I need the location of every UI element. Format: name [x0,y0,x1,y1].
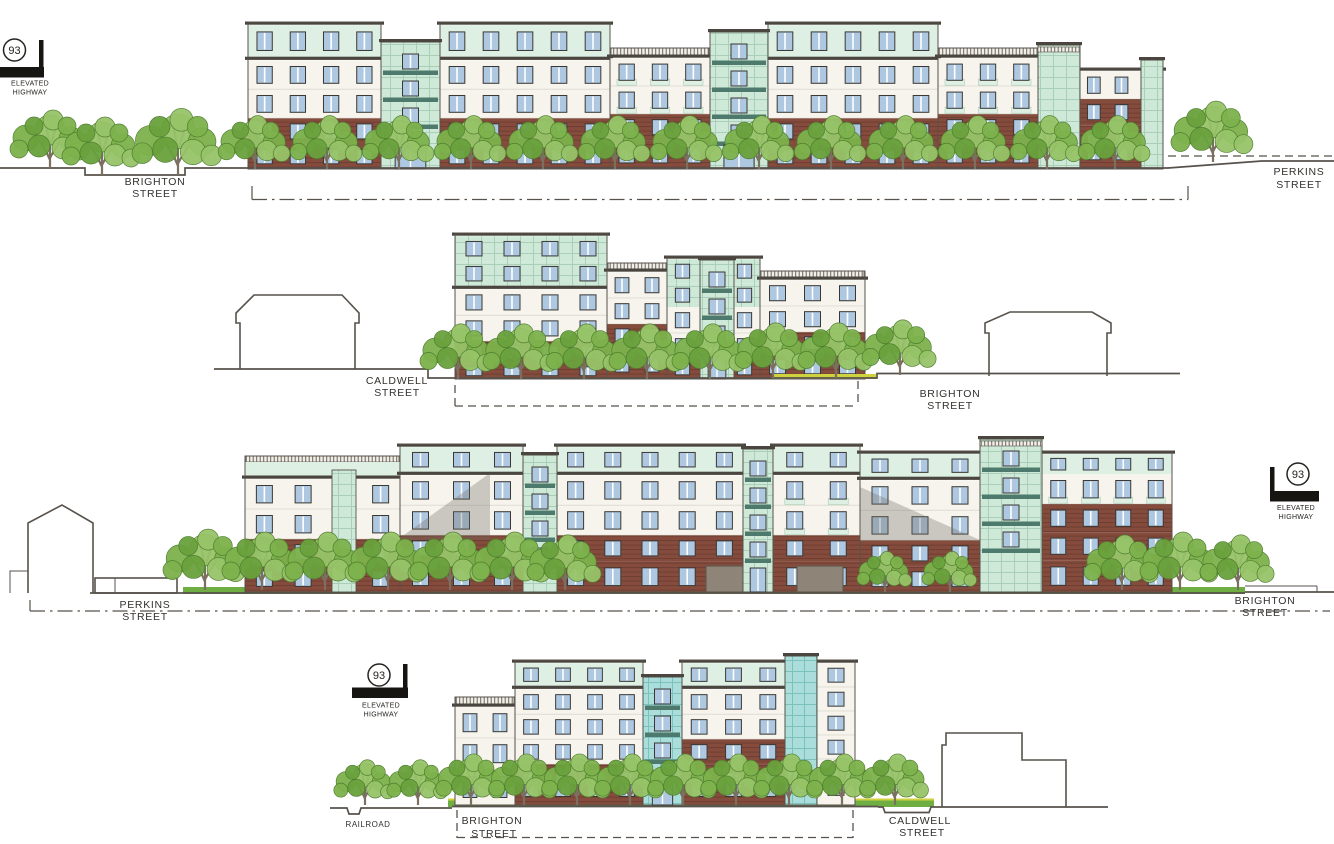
tree-canopy [304,122,321,139]
tree-canopy [655,331,672,348]
tree-canopy [232,122,249,139]
tree-canopy [609,352,626,369]
marker-label: ELEVATED [362,703,400,710]
street-label: CALDWELL [366,375,428,387]
tree-canopy [722,143,739,160]
tree-canopy [608,760,624,776]
neighbor-house-left [28,505,93,593]
cornice [765,57,941,60]
balcony-railing [702,289,732,294]
balcony-railing [982,549,1040,554]
tree-canopy [717,776,736,795]
tree-canopy [578,143,595,160]
tree-canopy [908,327,925,344]
tree-canopy [849,145,866,162]
tree-canopy [434,331,451,348]
balcony-railing [383,98,438,103]
sidewalk-wall [95,578,177,593]
tree-canopy [502,760,518,776]
tree-canopy [523,139,543,159]
neighbor-house-right [985,312,1111,376]
tree-canopy [149,116,170,137]
tree-canopy [153,137,178,162]
tree-canopy [739,139,759,159]
cornice [397,472,526,475]
tree-canopy [664,776,683,795]
tree-canopy [873,760,889,776]
tree-canopy [622,122,639,139]
tree-canopy [1024,122,1041,139]
highway-deck [1270,491,1319,502]
marker-label: HIGHWAY [364,712,399,719]
balcony-railing [645,733,680,738]
tree-canopy [752,347,773,368]
tree-canopy [1133,145,1150,162]
glass-bay [978,436,1044,592]
tree-canopy [1158,557,1180,579]
street-label: STREET [132,188,178,200]
garage-door [706,566,744,592]
tree-canopy [823,776,842,795]
tree-canopy [410,562,428,580]
tree-canopy [376,122,393,139]
tree-canopy [891,556,904,569]
cornice [935,55,1041,58]
roof-railing [980,441,1042,446]
tree-canopy [794,143,811,160]
tree-canopy [1098,542,1115,559]
tree-canopy [935,569,950,584]
tree-canopy [541,542,558,559]
tree-canopy [28,135,50,157]
tree-canopy [563,348,584,369]
tree-canopy [406,122,423,139]
tree [132,108,222,175]
tree-canopy [718,331,735,348]
tree-canopy [187,116,208,137]
tree-canopy [584,760,600,776]
tree-canopy [667,139,687,159]
tree-canopy [1155,539,1173,557]
tree-canopy [705,145,722,162]
street-label: BRIGHTON [125,176,186,188]
tree-canopy [811,139,831,159]
cornice [857,477,983,480]
tree-canopy [334,783,348,797]
roof-railing [608,263,666,269]
tree-canopy [736,122,753,139]
ground-line [330,807,1108,815]
tree-canopy [690,760,706,776]
tree-canopy [838,122,855,139]
marker-label: ELEVATED [1277,505,1315,512]
elevation-4: 93 ELEVATED HIGHWAY RAILROAD BRIGHTON ST… [330,653,1108,840]
tree-canopy [262,122,279,139]
tree-canopy [428,557,450,579]
marker-label: ELEVATED [11,81,49,88]
cornice [437,57,613,60]
street-label: BRIGHTON [920,388,981,400]
elevation-sheet: 93 ELEVATED HIGHWAY BRIGHTON STREET PERK… [0,0,1334,844]
tree-canopy [1217,559,1238,580]
street-label: STREET [899,827,945,839]
tree-canopy [550,122,567,139]
tree-canopy [346,765,360,779]
tree-canopy [379,139,399,159]
tree-canopy [611,776,630,795]
tree-canopy [689,348,710,369]
tree-canopy [743,760,759,776]
tree-canopy [964,574,977,587]
tree-canopy [1140,562,1158,580]
neighbor-house-left [236,295,359,369]
route-number: 93 [373,670,385,682]
tree-canopy [371,765,385,779]
tree-canopy [876,776,895,795]
tree-canopy [527,563,544,580]
tree-canopy [922,572,935,585]
tree-canopy [876,327,893,344]
cornice [1036,42,1082,45]
tree-canopy [808,122,825,139]
tree-canopy [672,352,689,369]
tree-canopy [1092,122,1109,139]
street-label: STREET [927,400,973,412]
tree-canopy [558,776,577,795]
tree-canopy [993,145,1010,162]
tree-canopy [448,122,465,139]
cornice [770,472,863,475]
tree-canopy [1188,539,1206,557]
tree-canopy [449,760,465,776]
tree-canopy [796,760,812,776]
tree-canopy [595,139,615,159]
tree-canopy [637,760,653,776]
ground-line [90,592,1334,593]
tree-canopy [913,782,929,798]
tree-canopy [933,556,946,569]
tree-canopy [777,145,794,162]
balcony-railing [982,495,1040,500]
tree-canopy [694,122,711,139]
balcony-railing [712,88,766,93]
tree-canopy [1214,542,1231,559]
street-label: CALDWELL [889,815,951,827]
road-edge [1245,586,1317,592]
tree-canopy [222,562,240,580]
tree-canopy [921,145,938,162]
tree-canopy [345,145,362,162]
tree-canopy [754,780,770,796]
highway-deck [0,67,44,78]
elevation-drawing: 93 ELEVATED HIGHWAY BRIGHTON STREET PERK… [0,0,1334,844]
tree-canopy [520,122,537,139]
tree-canopy [982,122,999,139]
balcony-railing [745,532,771,537]
tree-canopy [334,122,351,139]
highway-marker: 93 ELEVATED HIGHWAY [352,664,408,719]
tree-canopy [303,557,325,579]
tree-canopy [420,352,437,369]
garage-door [797,566,843,592]
tree-canopy [1078,143,1095,160]
cornice [512,686,646,689]
tree-canopy [333,539,351,557]
tree-canopy [425,539,443,557]
balcony-railing [702,316,732,321]
tree-canopy [573,542,590,559]
marker-label: HIGHWAY [13,90,48,97]
tree-canopy [879,344,900,365]
tree-canopy [592,331,609,348]
tree-canopy [664,122,681,139]
tree-canopy [749,330,766,347]
cornice [245,57,384,60]
tree-canopy [1027,139,1047,159]
tree-canopy [857,572,870,585]
tree-canopy [820,760,836,776]
tree-canopy [497,331,514,348]
tree-canopy [650,143,667,160]
street-label: BRIGHTON [462,815,523,827]
house-annex-line [10,571,28,593]
penthouse-floor [245,462,400,476]
balcony-railing [383,71,438,76]
tree-canopy [363,539,381,557]
tree-canopy [505,776,524,795]
tree-canopy [542,780,558,796]
tree-canopy [561,145,578,162]
tree-canopy [560,331,577,348]
route-number: 93 [1292,469,1304,481]
highway-marker: 93 ELEVATED HIGHWAY [1270,463,1319,521]
tree-canopy [592,122,609,139]
street-label: PERKINS [120,599,171,611]
tree-canopy [544,559,565,580]
street-label: STREET [1242,607,1288,619]
tree-canopy [451,139,471,159]
cornice [1139,57,1165,60]
tree-canopy [270,539,288,557]
tree-canopy [938,143,955,160]
tree-canopy [348,779,365,796]
cornice [783,653,819,656]
highway-pier [39,40,44,68]
cornice [379,39,442,42]
tree-canopy [1095,139,1115,159]
cornice [554,472,746,475]
tree-canopy [235,139,255,159]
cornice [452,286,610,289]
tree-canopy [595,780,611,796]
tree-canopy [546,352,563,369]
cornice [757,277,868,280]
tree-canopy [307,139,327,159]
tree [862,320,936,375]
tree-canopy [1221,108,1240,127]
cornice [698,257,736,260]
tree-canopy [1234,135,1253,154]
tree-canopy [58,117,76,135]
tree-canopy [1200,563,1217,580]
tree-canopy [880,122,897,139]
balcony-railing [712,61,766,66]
tree-canopy [555,760,571,776]
tree-canopy [849,760,865,776]
cornice [741,446,775,449]
cornice [604,269,670,272]
tree-canopy [401,779,418,796]
balcony-railing [525,511,555,516]
elevation-3: 93 ELEVATED HIGHWAY PERKINS STREET BRIGH… [10,436,1334,623]
tree-canopy [478,760,494,776]
tree-canopy [436,780,452,796]
tree-canopy [701,780,717,796]
tree [334,760,395,805]
highway-marker: 93 ELEVATED HIGHWAY [0,39,49,97]
tree-canopy [870,569,885,584]
tree-canopy [182,555,205,578]
tree-canopy [472,562,490,580]
tree-canopy [490,557,512,579]
tree-canopy [1171,133,1190,152]
tree-canopy [300,539,318,557]
balcony-railing [745,478,771,483]
glass-bay [741,446,775,592]
tree-canopy [686,331,703,348]
lot-dashed-outline [455,381,858,406]
tree-canopy [273,145,290,162]
tree-canopy [844,330,861,347]
tree-canopy [466,331,483,348]
tree-canopy [910,122,927,139]
tree-canopy [489,780,505,796]
roof-railing [456,697,514,704]
tree-canopy [868,556,881,569]
cornice [242,476,403,479]
tree-canopy [458,539,476,557]
tree-canopy [483,352,500,369]
balcony-railing [745,505,771,510]
tree-canopy [366,557,388,579]
tree-canopy [714,760,730,776]
balcony-railing [645,706,680,711]
highway-deck [352,688,408,699]
roof-railing [1038,47,1080,52]
tree-canopy [1101,559,1122,580]
cornice [607,55,713,58]
tree-canopy [623,331,640,348]
street-label: BRIGHTON [1235,595,1296,607]
tree-canopy [237,539,255,557]
tree-canopy [290,143,307,160]
cornice [521,452,559,455]
tree-canopy [218,143,235,160]
street-label: STREET [1276,179,1322,191]
tree-canopy [1054,122,1071,139]
tree-canopy [396,539,414,557]
highway-pier [403,664,408,688]
tree-canopy [781,330,798,347]
tree-canopy [506,143,523,160]
tree-canopy [1190,127,1213,150]
balcony-railing [982,522,1040,527]
street-label: STREET [122,611,168,623]
cornice [978,436,1044,439]
penthouse-floor [773,447,860,472]
tree-canopy [434,143,451,160]
tree-canopy [648,780,664,796]
tree-canopy [626,348,647,369]
tree-canopy [437,348,458,369]
cornice [641,674,684,677]
tree-canopy [1010,143,1027,160]
tree-canopy [883,139,903,159]
elevation-1: 93 ELEVATED HIGHWAY BRIGHTON STREET PERK… [0,22,1334,201]
tree-canopy [489,145,506,162]
elevation-2: CALDWELL STREET BRIGHTON STREET [214,233,1180,413]
roof-railing [939,48,1037,55]
tree [1171,101,1253,162]
tree-canopy [767,760,783,776]
tree-canopy [387,783,401,797]
tree-canopy [860,780,876,796]
tree-canopy [163,561,182,580]
tree-canopy [240,557,262,579]
street-label: STREET [471,828,517,840]
tree-canopy [179,536,198,555]
roof-railing [761,271,864,277]
tree-canopy [633,145,650,162]
tree-canopy [1122,122,1139,139]
tree-canopy [362,143,379,160]
roof-railing [611,48,709,55]
balcony-railing [982,468,1040,473]
tree-canopy [807,780,823,796]
tree-canopy [478,122,495,139]
tree-canopy [952,122,969,139]
tree-canopy [110,124,128,142]
tree-canopy [770,776,789,795]
roof-railing [246,456,399,462]
tree-canopy [862,348,879,365]
balcony-railing [745,559,771,564]
tree-canopy [812,330,829,347]
tree-canopy [285,562,303,580]
tree-canopy [766,122,783,139]
tree-canopy [956,556,969,569]
tree-canopy [10,140,28,158]
cornice [452,704,518,707]
cornice [708,29,770,32]
tree-canopy [62,147,80,165]
tree-canopy [899,574,912,587]
tree-canopy [919,350,936,367]
route-number: 93 [8,45,20,57]
tree-canopy [487,539,505,557]
tree-canopy [798,351,815,368]
tree-canopy [1084,563,1101,580]
tree-canopy [531,760,547,776]
tree-canopy [25,117,43,135]
street-label: PERKINS [1274,166,1325,178]
tree-canopy [661,760,677,776]
tree-canopy [1246,542,1263,559]
tree-canopy [735,351,752,368]
tree-canopy [348,562,366,580]
tree-canopy [500,348,521,369]
tree-canopy [452,776,471,795]
